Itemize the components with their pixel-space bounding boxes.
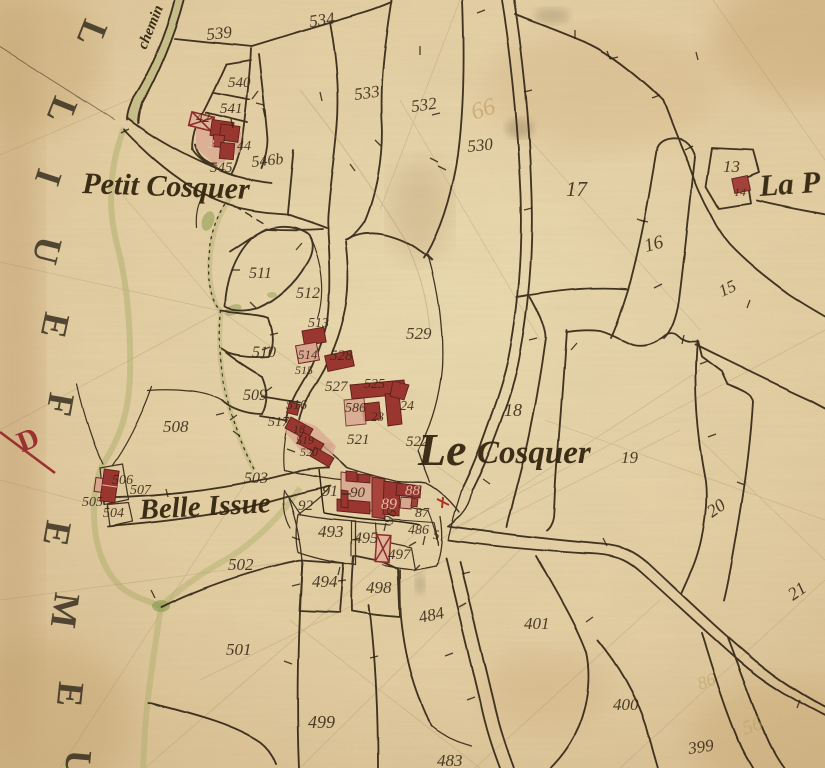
svg-text:401: 401	[524, 614, 550, 633]
svg-text:483: 483	[437, 751, 463, 768]
svg-text:493: 493	[318, 522, 344, 541]
svg-text:498: 498	[366, 578, 392, 597]
svg-text:528: 528	[330, 348, 353, 364]
svg-text:Cosquer: Cosquer	[477, 435, 592, 471]
svg-text:Le: Le	[417, 424, 467, 475]
svg-text:503: 503	[244, 470, 268, 487]
svg-text:399: 399	[686, 736, 715, 759]
svg-text:499: 499	[308, 712, 335, 732]
svg-text:509: 509	[243, 387, 267, 404]
svg-text:495: 495	[354, 530, 378, 547]
svg-text:515: 515	[295, 363, 313, 377]
svg-text:501: 501	[226, 640, 252, 659]
svg-text:88: 88	[405, 483, 421, 499]
svg-text:3: 3	[207, 136, 215, 151]
svg-text:533: 533	[353, 82, 381, 104]
svg-text:E: E	[48, 680, 91, 709]
svg-text:586: 586	[345, 401, 366, 416]
svg-text:87: 87	[415, 506, 430, 521]
svg-text:511: 511	[249, 265, 272, 282]
svg-text:23: 23	[371, 409, 385, 424]
svg-text:513: 513	[308, 316, 329, 331]
svg-text:504: 504	[103, 506, 124, 521]
svg-text:520: 520	[300, 445, 318, 459]
svg-text:532: 532	[410, 94, 438, 116]
svg-text:M: M	[42, 590, 87, 630]
svg-text:497: 497	[388, 547, 412, 563]
svg-text:502: 502	[228, 555, 254, 574]
svg-text:17: 17	[566, 177, 589, 201]
svg-text:90: 90	[350, 485, 366, 501]
svg-text:U: U	[56, 748, 99, 768]
svg-text:546b: 546b	[251, 151, 285, 171]
svg-text:505: 505	[82, 495, 103, 510]
svg-text:539: 539	[205, 22, 233, 44]
svg-text:14: 14	[734, 185, 746, 199]
svg-text:42: 42	[196, 111, 210, 126]
svg-text:18: 18	[504, 400, 522, 420]
svg-text:508: 508	[163, 417, 189, 436]
svg-text:534: 534	[308, 9, 336, 31]
svg-text:19: 19	[621, 448, 639, 467]
svg-text:486: 486	[408, 523, 429, 538]
svg-text:514: 514	[298, 347, 318, 362]
svg-text:541: 541	[220, 101, 243, 117]
svg-text:24: 24	[400, 399, 414, 414]
svg-text:529: 529	[406, 324, 432, 343]
svg-text:510: 510	[252, 344, 276, 361]
svg-text:91: 91	[322, 483, 338, 500]
svg-text:527: 527	[325, 379, 349, 395]
svg-text:540: 540	[228, 75, 251, 91]
svg-text:400: 400	[613, 695, 639, 714]
svg-text:Petit Cosquer: Petit Cosquer	[81, 167, 251, 206]
svg-text:5: 5	[433, 527, 440, 542]
svg-text:525: 525	[364, 377, 385, 392]
svg-text:La P: La P	[757, 164, 822, 203]
svg-text:92: 92	[298, 498, 314, 514]
svg-text:494: 494	[312, 572, 338, 591]
svg-text:516: 516	[286, 398, 307, 413]
svg-text:517: 517	[268, 415, 290, 430]
svg-text:521: 521	[347, 432, 370, 448]
svg-text:13: 13	[723, 157, 740, 176]
svg-text:530: 530	[466, 134, 494, 156]
svg-text:44: 44	[237, 139, 251, 154]
svg-text:512: 512	[296, 285, 320, 302]
